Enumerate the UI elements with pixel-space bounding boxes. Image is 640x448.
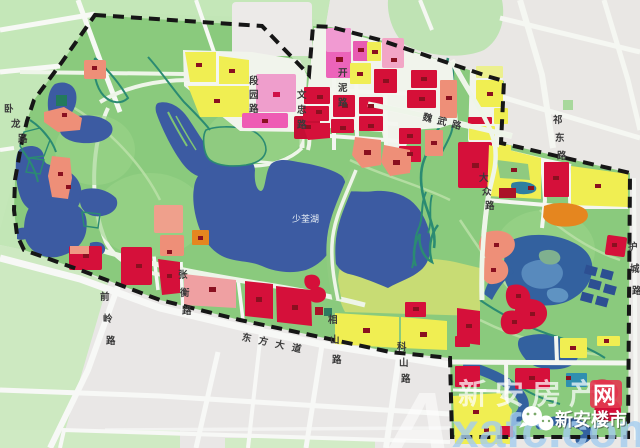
svg-text:大: 大 <box>479 172 489 184</box>
svg-text:少荃湖: 少荃湖 <box>292 213 319 224</box>
svg-text:众: 众 <box>482 186 492 198</box>
svg-text:开: 开 <box>338 68 348 79</box>
svg-text:相: 相 <box>328 314 338 326</box>
svg-text:山: 山 <box>330 334 340 346</box>
svg-text:龙: 龙 <box>10 118 21 130</box>
svg-text:路: 路 <box>632 285 640 297</box>
svg-text:园: 园 <box>249 90 259 101</box>
svg-text:泥: 泥 <box>338 82 348 94</box>
svg-text:路: 路 <box>485 200 495 212</box>
svg-text:卧: 卧 <box>4 103 14 115</box>
svg-text:岭: 岭 <box>103 313 113 325</box>
svg-text:张: 张 <box>178 269 188 281</box>
svg-text:护: 护 <box>628 241 638 253</box>
svg-text:忠: 忠 <box>297 104 307 116</box>
svg-text:祁: 祁 <box>553 114 563 126</box>
svg-text:路: 路 <box>18 133 28 145</box>
svg-text:路: 路 <box>338 97 348 109</box>
svg-text:科: 科 <box>397 341 407 353</box>
svg-text:前: 前 <box>100 291 110 303</box>
svg-text:路: 路 <box>182 305 192 317</box>
svg-text:文: 文 <box>296 89 307 101</box>
svg-text:新安楼市: 新安楼市 <box>555 409 627 430</box>
svg-text:东: 东 <box>555 132 565 144</box>
svg-text:网: 网 <box>593 382 616 408</box>
svg-text:路: 路 <box>249 103 259 115</box>
svg-text:路: 路 <box>557 150 567 162</box>
svg-text:A: A <box>384 374 452 448</box>
svg-text:路: 路 <box>106 335 116 347</box>
svg-text:路: 路 <box>297 119 307 131</box>
svg-text:山: 山 <box>399 357 409 369</box>
svg-text:段: 段 <box>249 75 259 87</box>
svg-text:路: 路 <box>332 354 342 366</box>
svg-text:衡: 衡 <box>180 287 190 299</box>
svg-text:城: 城 <box>630 263 640 275</box>
